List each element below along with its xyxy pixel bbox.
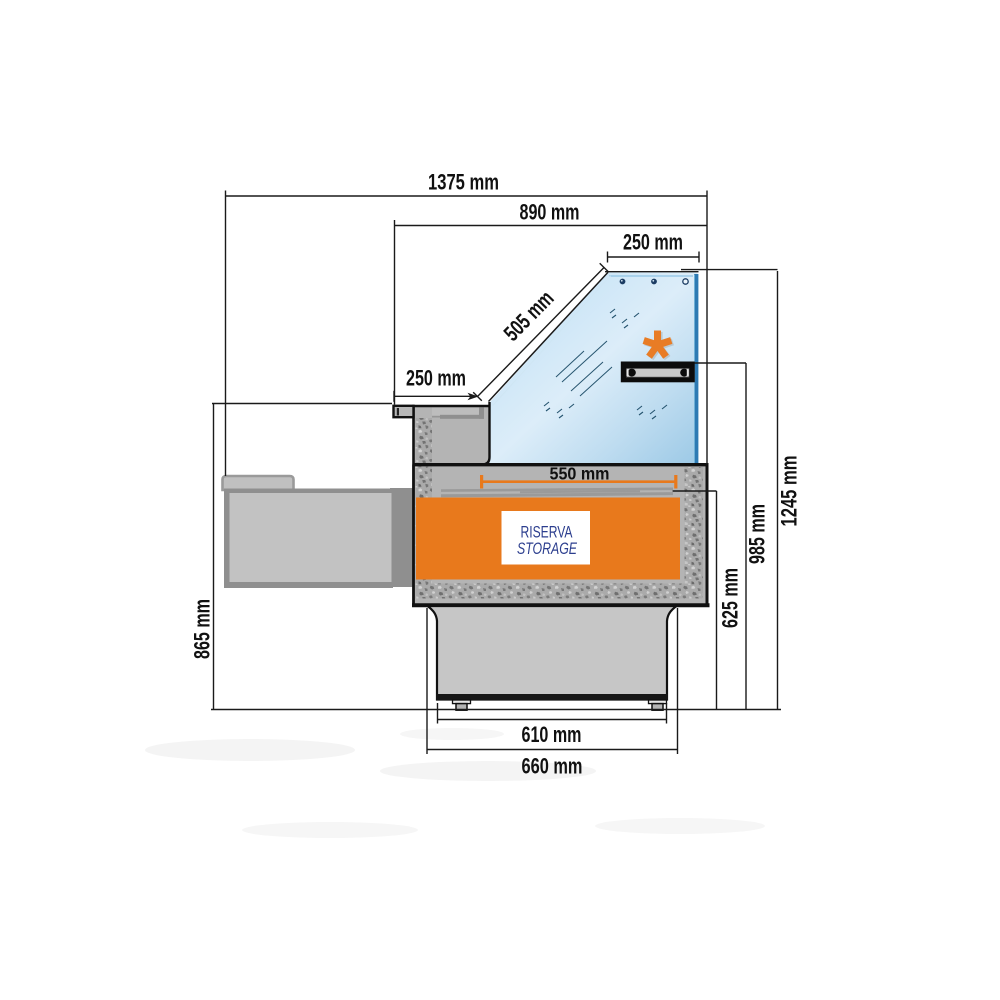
svg-text:1375 mm: 1375 mm [428,170,499,195]
svg-text:250 mm: 250 mm [406,366,466,391]
svg-text:890 mm: 890 mm [520,200,580,225]
svg-text:865 mm: 865 mm [190,599,215,659]
svg-text:625 mm: 625 mm [718,568,743,628]
svg-text:STORAGE: STORAGE [517,540,578,558]
svg-text:610 mm: 610 mm [522,722,582,747]
svg-text:250 mm: 250 mm [623,230,683,255]
svg-text:985 mm: 985 mm [745,504,770,564]
svg-text:550 mm: 550 mm [550,464,610,484]
svg-text:660 mm: 660 mm [522,754,583,779]
svg-text:RISERVA: RISERVA [521,524,573,542]
svg-text:1245 mm: 1245 mm [777,456,802,527]
